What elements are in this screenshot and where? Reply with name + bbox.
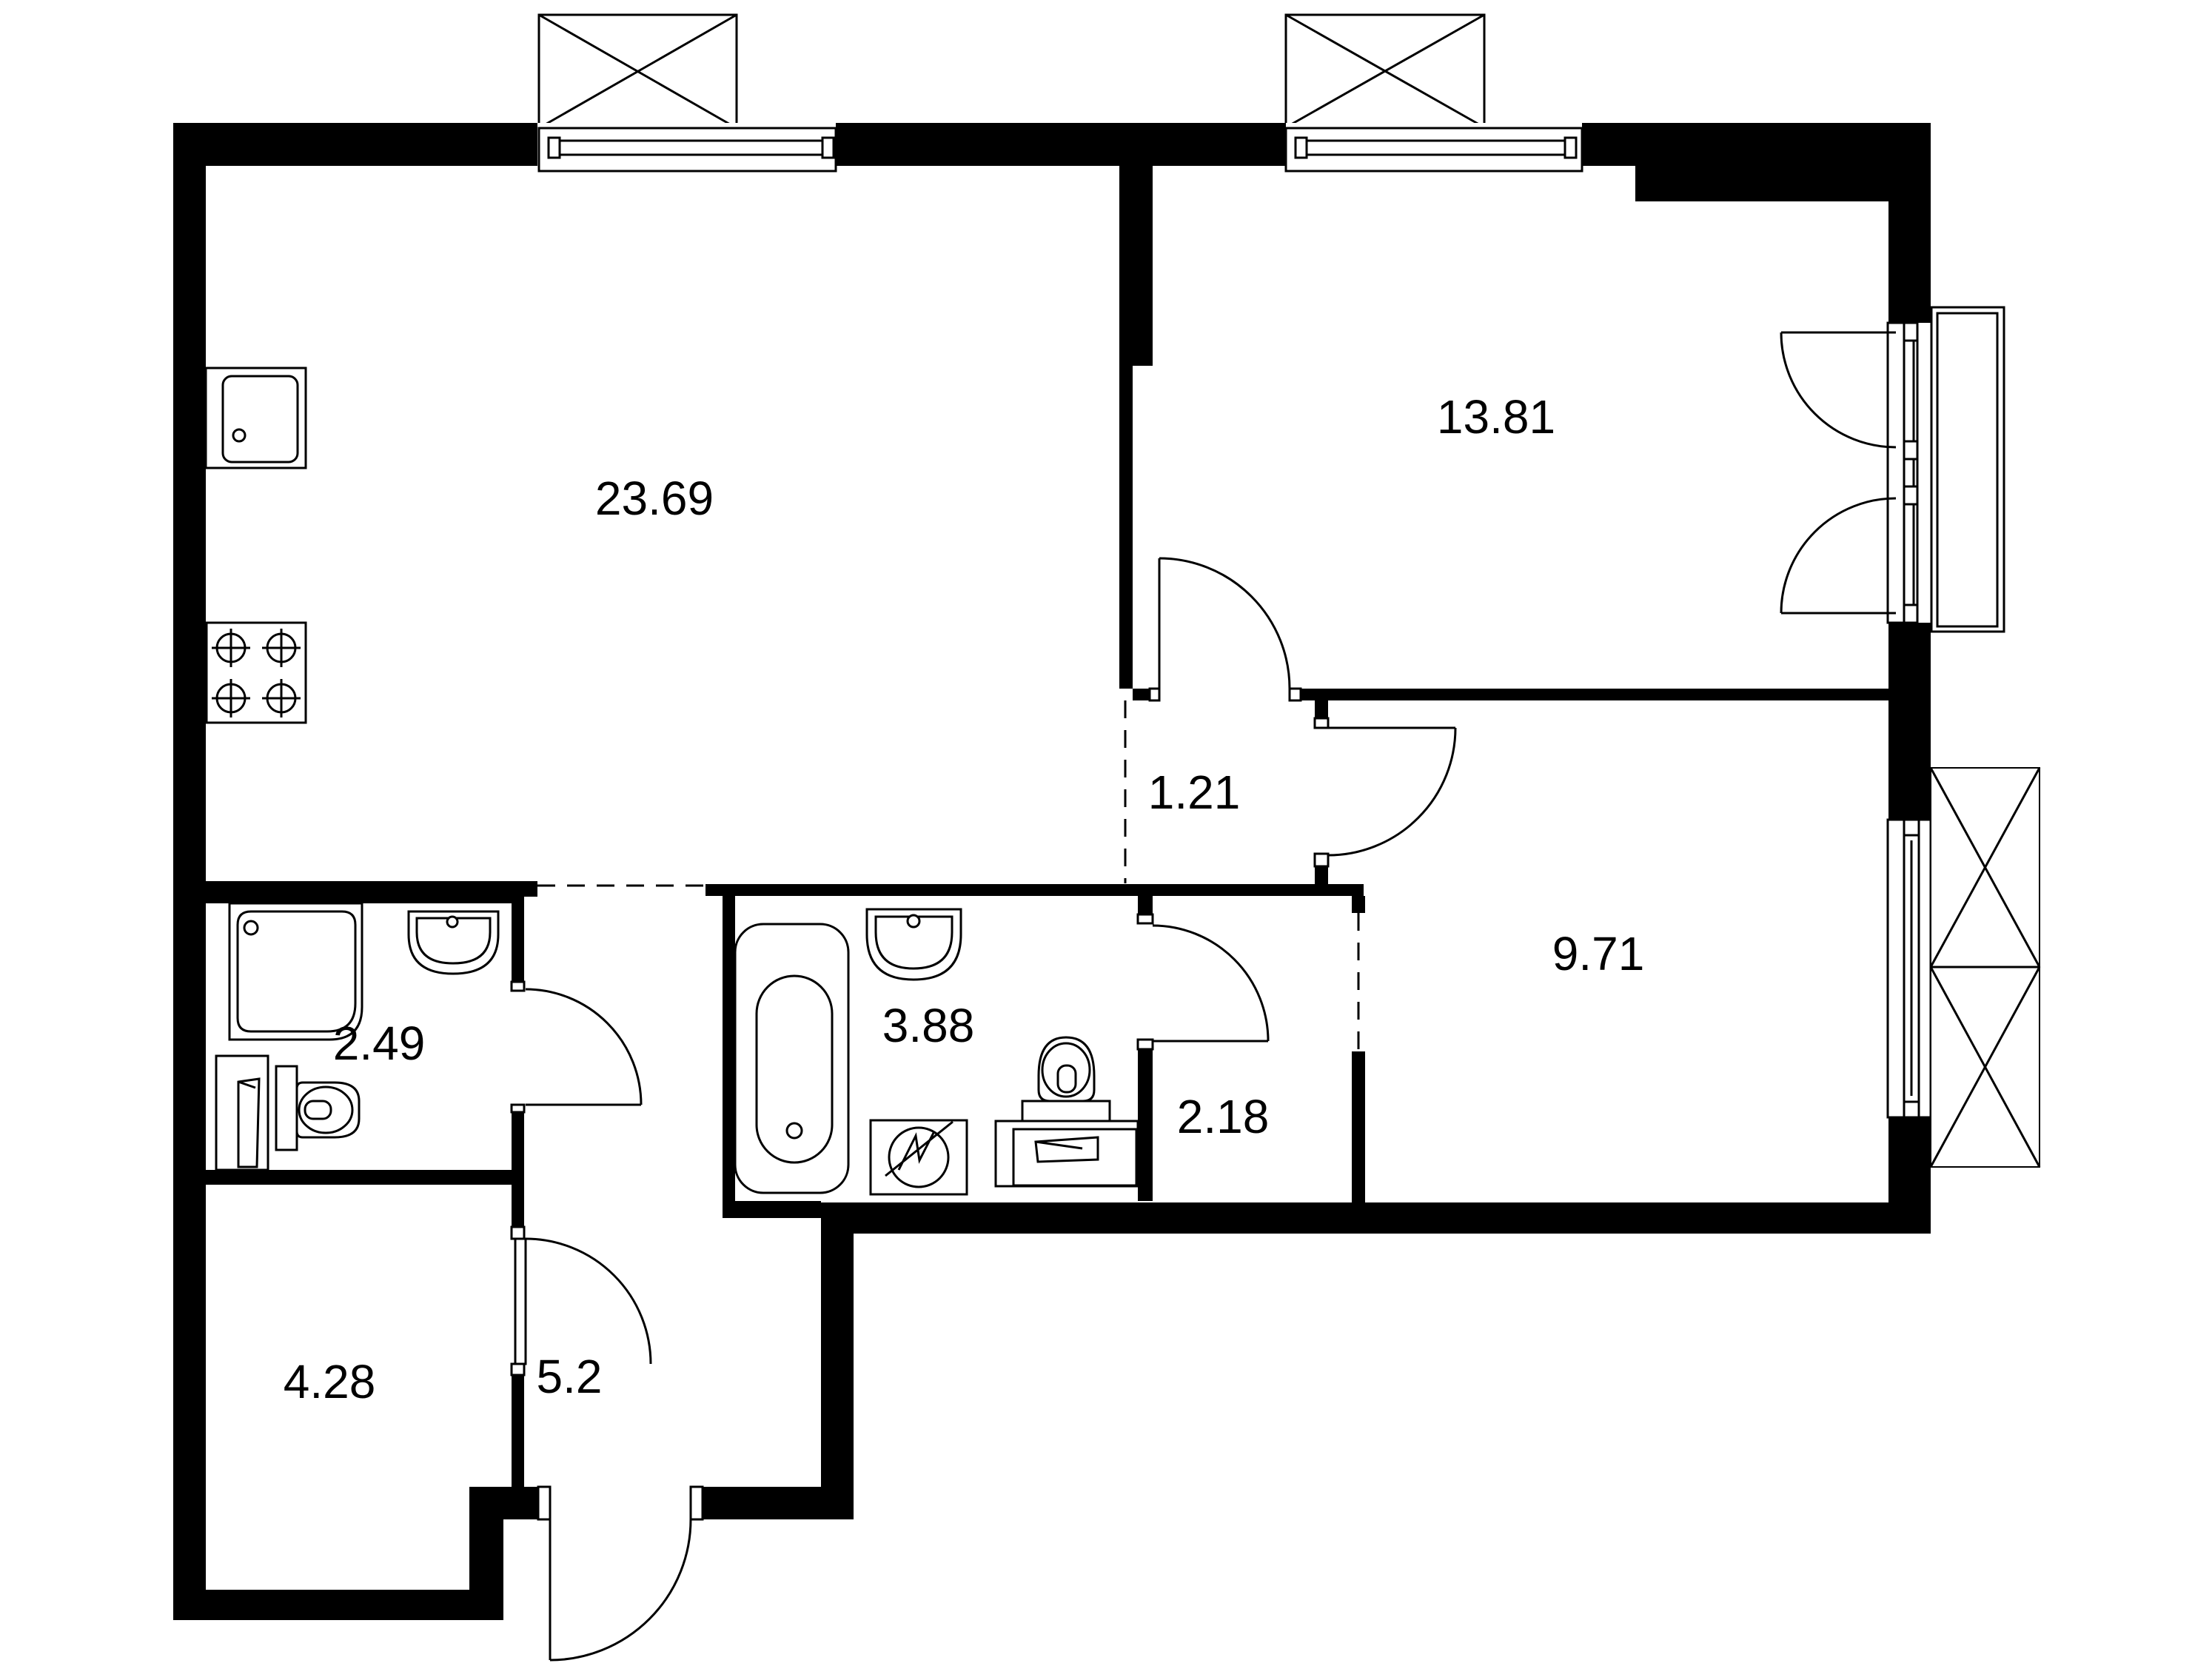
svg-text:1.21: 1.21 <box>1148 766 1241 819</box>
svg-text:4.28: 4.28 <box>284 1355 376 1408</box>
svg-text:2.49: 2.49 <box>333 1017 426 1070</box>
svg-text:3.88: 3.88 <box>882 999 975 1052</box>
svg-text:9.71: 9.71 <box>1552 927 1645 980</box>
svg-text:2.18: 2.18 <box>1177 1090 1270 1143</box>
svg-text:23.69: 23.69 <box>595 472 714 525</box>
svg-text:5.2: 5.2 <box>537 1350 603 1403</box>
svg-text:13.81: 13.81 <box>1437 390 1555 444</box>
